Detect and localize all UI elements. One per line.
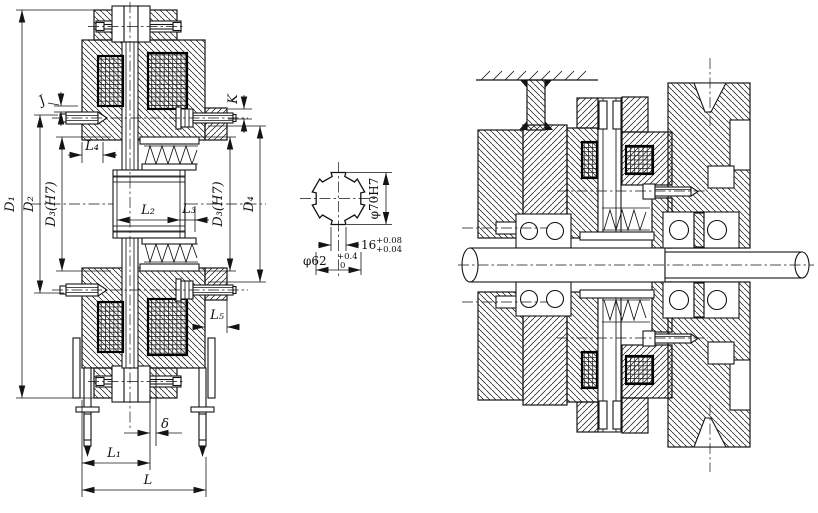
dim-label-l3: L₃ xyxy=(181,202,196,217)
drawing-canvas: D₁ D₂ D₃(H7) D₃(H7) D₄ xyxy=(0,0,818,513)
dim-label-d3-left: D₃(H7) xyxy=(44,181,59,227)
dim-label-l4: L₄ xyxy=(84,139,99,154)
ground-hatch xyxy=(481,71,586,80)
dim-label-l2: L₂ xyxy=(140,203,155,218)
dim-label-d2: D₂ xyxy=(22,196,37,213)
dim-label-d3-right: D₃(H7) xyxy=(211,181,226,227)
clutch-engineering-drawing: D₁ D₂ D₃(H7) D₃(H7) D₄ xyxy=(0,0,818,513)
seal-ring-bottom xyxy=(708,342,734,364)
dim-label-key-width-tol-lower: +0.04 xyxy=(376,245,402,255)
dim-label-d4: D₄ xyxy=(242,196,257,213)
left-section-view: D₁ D₂ D₃(H7) D₃(H7) D₄ xyxy=(3,2,266,497)
dim-label-j: J xyxy=(34,93,49,110)
dim-label-delta: δ xyxy=(161,417,169,432)
support-column xyxy=(527,80,545,130)
dim-label-k: K xyxy=(226,93,241,105)
dim-label-minor-dia: φ62 xyxy=(303,254,327,268)
dim-label-l: L xyxy=(143,473,153,488)
dim-label-d1: D₁ xyxy=(3,196,18,213)
dim-label-l5: L₅ xyxy=(209,308,225,323)
dim-label-l1: L₁ xyxy=(106,446,121,461)
seal-ring-top xyxy=(708,166,734,188)
dim-label-minor-dia-tol-lower: 0 xyxy=(340,261,345,271)
spline-cross-section: φ70H7 16 +0.08 +0.04 φ62 +0.4 0 xyxy=(300,162,402,276)
dim-label-key-width: 16 xyxy=(361,238,376,252)
dim-label-bore-dia: φ70H7 xyxy=(367,178,381,220)
right-installation-view xyxy=(458,58,814,472)
